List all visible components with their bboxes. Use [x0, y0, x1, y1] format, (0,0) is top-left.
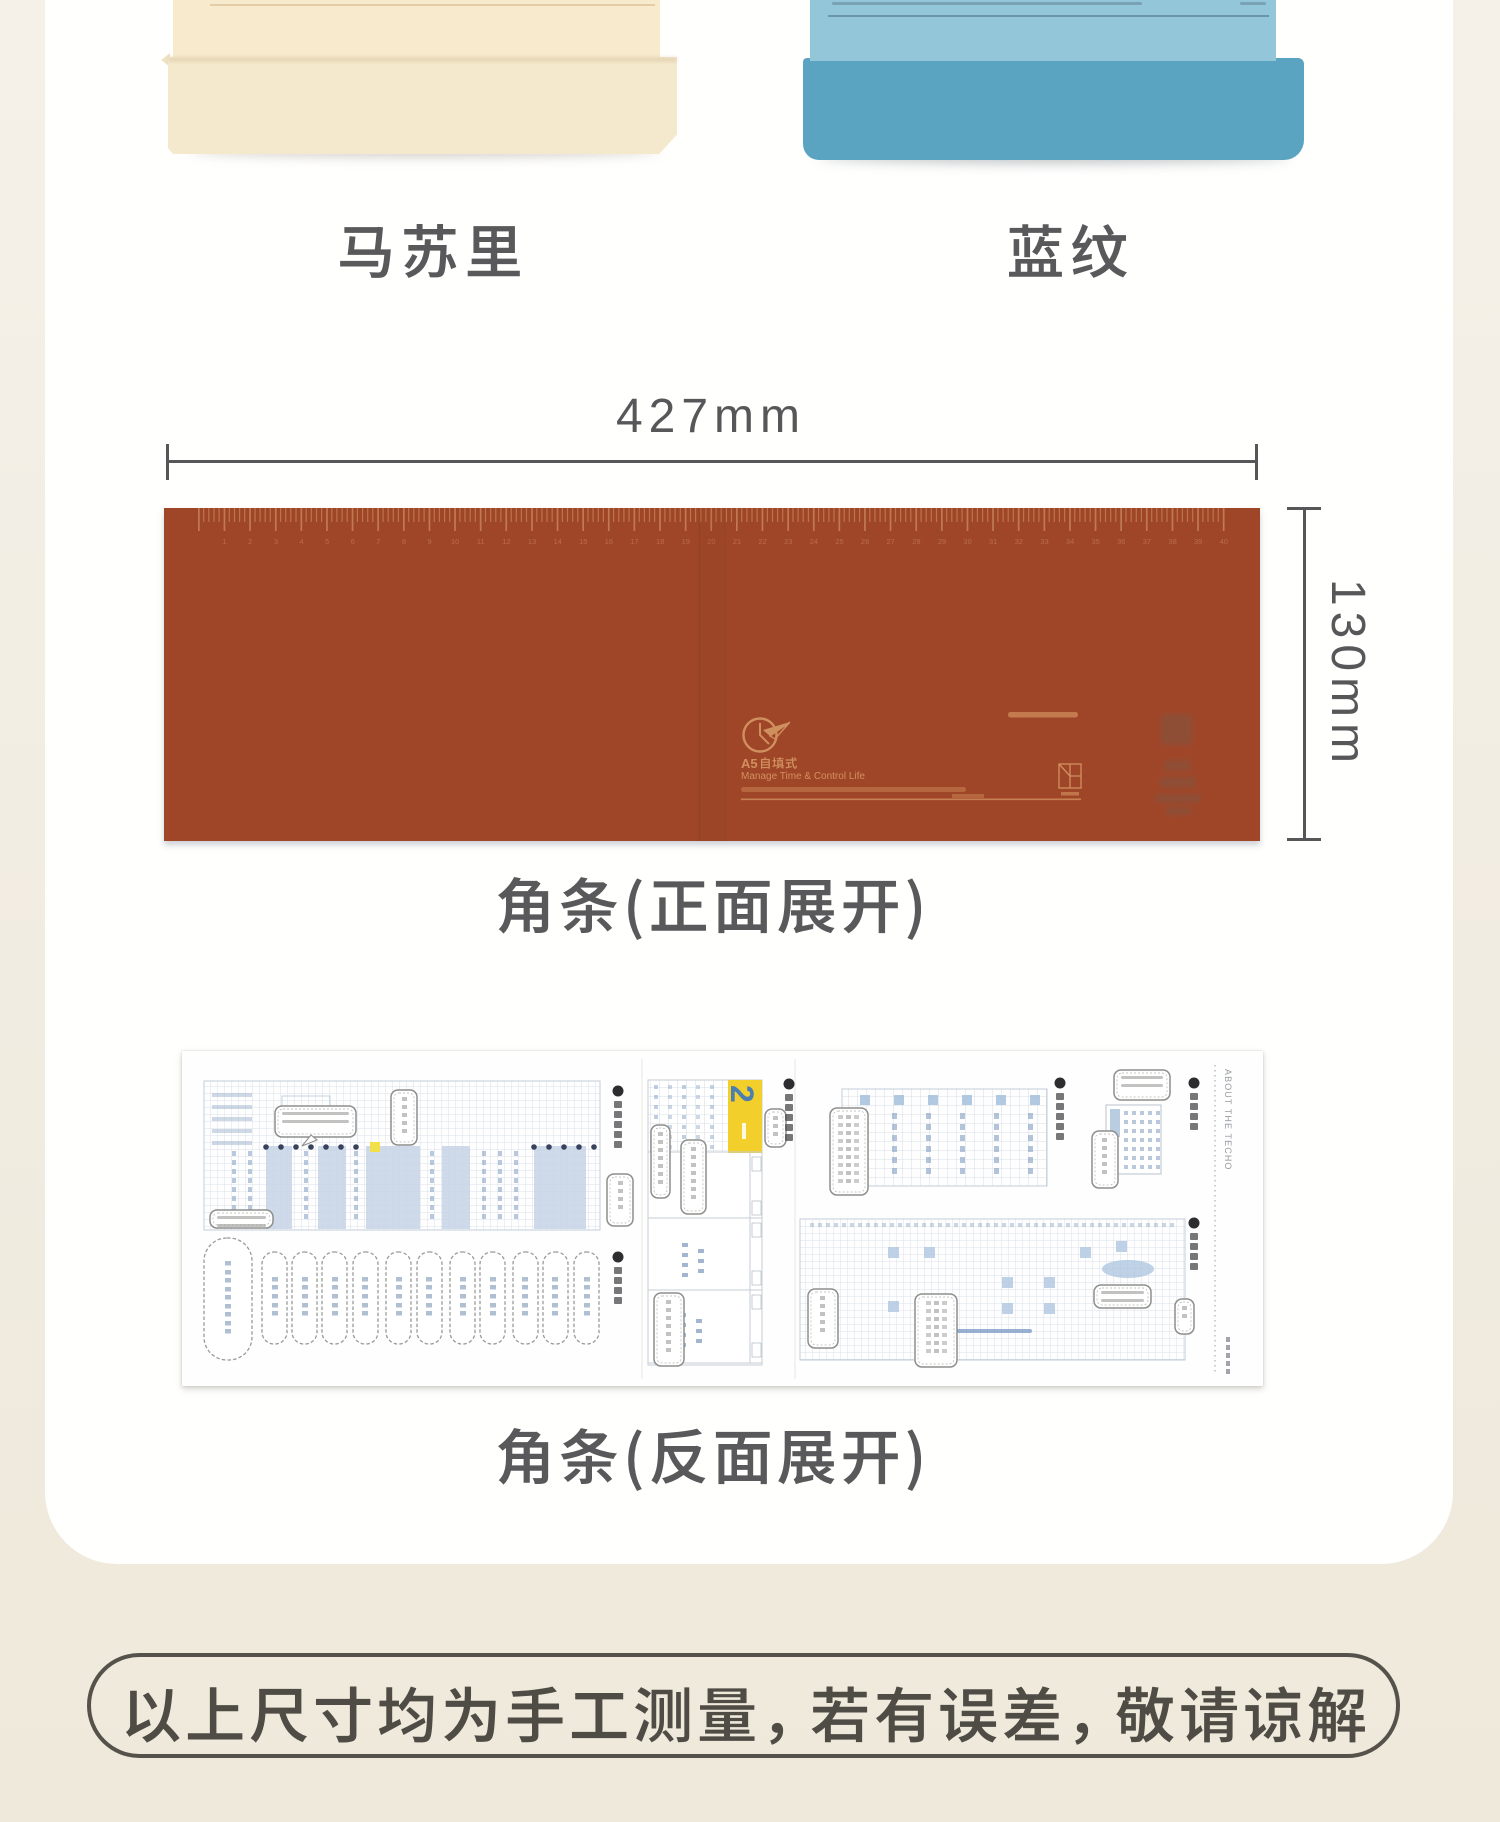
- svg-text:39: 39: [1194, 537, 1202, 546]
- svg-text:3: 3: [274, 537, 278, 546]
- svg-text:40: 40: [1220, 537, 1228, 546]
- svg-text:29: 29: [938, 537, 946, 546]
- svg-text:36: 36: [1117, 537, 1125, 546]
- svg-text:2: 2: [248, 537, 252, 546]
- svg-text:26: 26: [861, 537, 869, 546]
- svg-text:35: 35: [1092, 537, 1100, 546]
- svg-text:14: 14: [554, 537, 562, 546]
- svg-text:5: 5: [325, 537, 329, 546]
- svg-text:2: 2: [724, 1085, 760, 1103]
- svg-text:30: 30: [963, 537, 971, 546]
- svg-text:28: 28: [912, 537, 920, 546]
- svg-text:23: 23: [784, 537, 792, 546]
- svg-text:10: 10: [451, 537, 459, 546]
- svg-text:7: 7: [376, 537, 380, 546]
- svg-text:24: 24: [810, 537, 818, 546]
- svg-text:27: 27: [887, 537, 895, 546]
- svg-text:8: 8: [402, 537, 406, 546]
- svg-text:31: 31: [989, 537, 997, 546]
- svg-text:25: 25: [835, 537, 843, 546]
- svg-text:19: 19: [682, 537, 690, 546]
- svg-text:11: 11: [477, 537, 485, 546]
- svg-text:17: 17: [630, 537, 638, 546]
- svg-text:6: 6: [351, 537, 355, 546]
- svg-text:1: 1: [223, 537, 227, 546]
- svg-text:38: 38: [1168, 537, 1176, 546]
- svg-text:34: 34: [1066, 537, 1074, 546]
- svg-text:4: 4: [299, 537, 303, 546]
- svg-text:18: 18: [656, 537, 664, 546]
- svg-text:15: 15: [579, 537, 587, 546]
- svg-text:21: 21: [733, 537, 741, 546]
- svg-text:32: 32: [1015, 537, 1023, 546]
- svg-text:37: 37: [1143, 537, 1151, 546]
- svg-text:12: 12: [502, 537, 510, 546]
- svg-text:16: 16: [605, 537, 613, 546]
- svg-text:Manage Time & Control Life: Manage Time & Control Life: [741, 771, 865, 782]
- svg-text:A5: A5: [741, 756, 758, 771]
- svg-text:33: 33: [1040, 537, 1048, 546]
- svg-text:9: 9: [428, 537, 432, 546]
- svg-text:ABOUT THE TECHO: ABOUT THE TECHO: [1223, 1069, 1233, 1171]
- svg-text:13: 13: [528, 537, 536, 546]
- svg-text:22: 22: [758, 537, 766, 546]
